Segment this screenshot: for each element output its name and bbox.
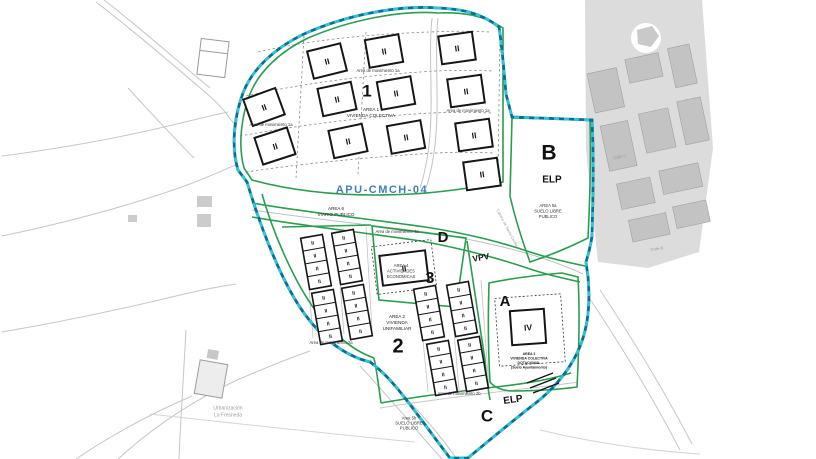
residential-block-ii xyxy=(438,32,476,64)
parcel-a-note: VIVIENDA COLECTIVA xyxy=(510,356,548,360)
area4-number: 3 xyxy=(426,270,435,287)
areaB-title: PUBLICO xyxy=(539,214,558,219)
residential-block-ii xyxy=(365,34,403,67)
parcel-d-letter: D xyxy=(438,229,449,246)
parcel-a-note: DOTACIONAL xyxy=(517,361,541,365)
parcel-a-building: IV xyxy=(510,309,546,345)
residential-block-ii xyxy=(463,158,501,190)
area4-title: ACTIVIDADES xyxy=(387,269,415,274)
area2-number: 2 xyxy=(392,335,403,357)
area2-title: AREA 2 xyxy=(389,314,406,319)
parcel-a-note: (Suelo Ayuntamiento) xyxy=(511,365,547,369)
areaD-title: AREA 6 xyxy=(328,206,345,211)
terraced-row xyxy=(427,340,458,395)
area1-title: VIVIENDA COLECTIVA xyxy=(347,113,396,118)
movement-label: Area de movimiento 1a xyxy=(249,122,293,127)
movement-label: Area de movimiento 2b xyxy=(437,391,481,396)
terraced-row xyxy=(301,234,332,289)
area4-title: ECONOMICAS xyxy=(387,274,416,279)
terraced-row xyxy=(332,229,363,284)
planning-map-page: II II II II II Call xyxy=(0,0,816,459)
block-roman-label: IV xyxy=(524,322,533,333)
movement-label: Area de movimiento 4a xyxy=(375,229,419,234)
residential-block-ii xyxy=(255,127,296,164)
elp-tag: ELP xyxy=(542,175,562,186)
elp-tag: ELP xyxy=(503,393,524,407)
area2-title: UNIFAMILIAR xyxy=(383,326,413,331)
area1-title: AREA 1 xyxy=(363,107,380,112)
areaC-title: PUBLICO xyxy=(400,426,419,431)
terraced-row xyxy=(342,284,373,339)
residential-block-ii xyxy=(377,76,415,109)
zoning-plan-map: II II II II II Call xyxy=(0,0,816,459)
area1-number: 1 xyxy=(362,81,371,100)
residential-block-ii xyxy=(387,120,425,153)
terraced-row xyxy=(458,336,489,391)
areaB-title: SUELO LIBRE xyxy=(534,209,562,214)
residential-block-ii xyxy=(455,119,493,151)
neighborhood-label: Urbanización xyxy=(213,405,242,411)
parcel-c-letter: C xyxy=(481,406,493,425)
parcel-a-note: AREA 3 xyxy=(523,352,536,356)
parcel-a-letter: A xyxy=(500,293,511,310)
vpv-tag: VPV xyxy=(472,251,491,264)
terraced-row xyxy=(312,289,343,344)
areaD-title: VIARIO PUBLICO xyxy=(317,212,354,217)
terraced-row xyxy=(447,281,478,336)
movement-label: Area de movimiento 1a xyxy=(356,68,400,73)
context-urban-fabric-northeast: Calle G Calle B xyxy=(585,0,727,268)
area2-title: VIVIENDA xyxy=(386,320,408,325)
residential-block-ii xyxy=(307,43,347,78)
residential-block-ii xyxy=(328,124,367,158)
plan-code-label: APU-CMCH-04 xyxy=(336,184,428,196)
neighborhood-label: La Fresneda xyxy=(214,412,242,418)
areaB-title: AREA 5a xyxy=(540,203,558,208)
residential-block-ii xyxy=(317,82,356,116)
terraced-row xyxy=(414,285,445,340)
movement-label: Area de movimiento 2a xyxy=(309,340,353,345)
parcel-b-letter: B xyxy=(541,142,556,165)
movement-label: Area de movimiento 1a xyxy=(446,108,490,113)
residential-block-ii xyxy=(447,75,485,107)
area4-title: AREA 4 xyxy=(394,263,409,268)
